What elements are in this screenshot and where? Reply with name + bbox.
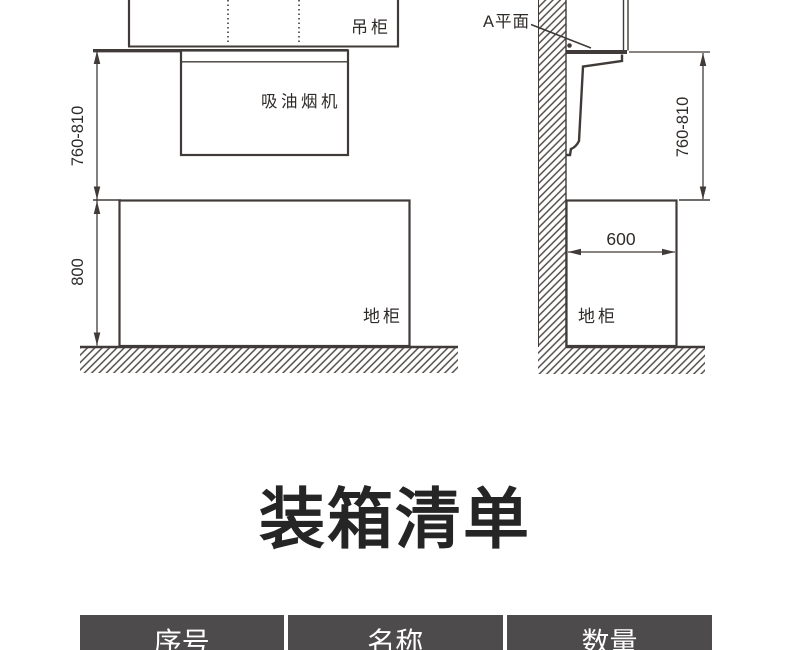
front-ground-hatch xyxy=(80,347,458,373)
side-hood-profile xyxy=(566,55,622,156)
dim-counter-to-hood-front xyxy=(94,51,101,200)
installation-diagrams: 吊柜 吸油烟机 地柜 760-810 xyxy=(0,0,790,462)
dim-counter-to-hood-side xyxy=(700,53,707,200)
range-hood-label: 吸油烟机 xyxy=(261,92,341,111)
side-ground-hatch xyxy=(538,347,705,374)
dim-label-600: 600 xyxy=(606,229,635,249)
packing-col-serial: 序号 xyxy=(80,615,284,650)
dim-label-760-810-front: 760-810 xyxy=(69,106,87,167)
front-view: 吊柜 吸油烟机 地柜 760-810 xyxy=(69,0,458,373)
packing-col-quantity: 数量 xyxy=(507,615,712,650)
dim-counter-height xyxy=(94,201,101,346)
dim-label-760-810-side: 760-810 xyxy=(674,97,692,158)
side-view: A平面 地柜 600 760-810 xyxy=(483,0,710,374)
side-base-cabinet-label: 地柜 xyxy=(578,307,618,326)
side-wall-cabinet-front xyxy=(624,0,629,51)
wall-cabinet-label: 吊柜 xyxy=(351,18,391,37)
dim-label-800: 800 xyxy=(69,258,87,286)
packing-table-header: 序号 名称 数量 xyxy=(80,615,712,650)
diagram-svg: 吊柜 吸油烟机 地柜 760-810 xyxy=(0,0,790,462)
a-plane-leader-dot xyxy=(567,43,572,48)
front-base-cabinet-label: 地柜 xyxy=(363,307,403,326)
a-plane-label: A平面 xyxy=(483,13,530,31)
manual-page: 吊柜 吸油烟机 地柜 760-810 xyxy=(0,0,790,650)
packing-col-name: 名称 xyxy=(288,615,503,650)
wall-hatch xyxy=(538,0,566,374)
packing-list-title: 装箱清单 xyxy=(0,486,790,552)
